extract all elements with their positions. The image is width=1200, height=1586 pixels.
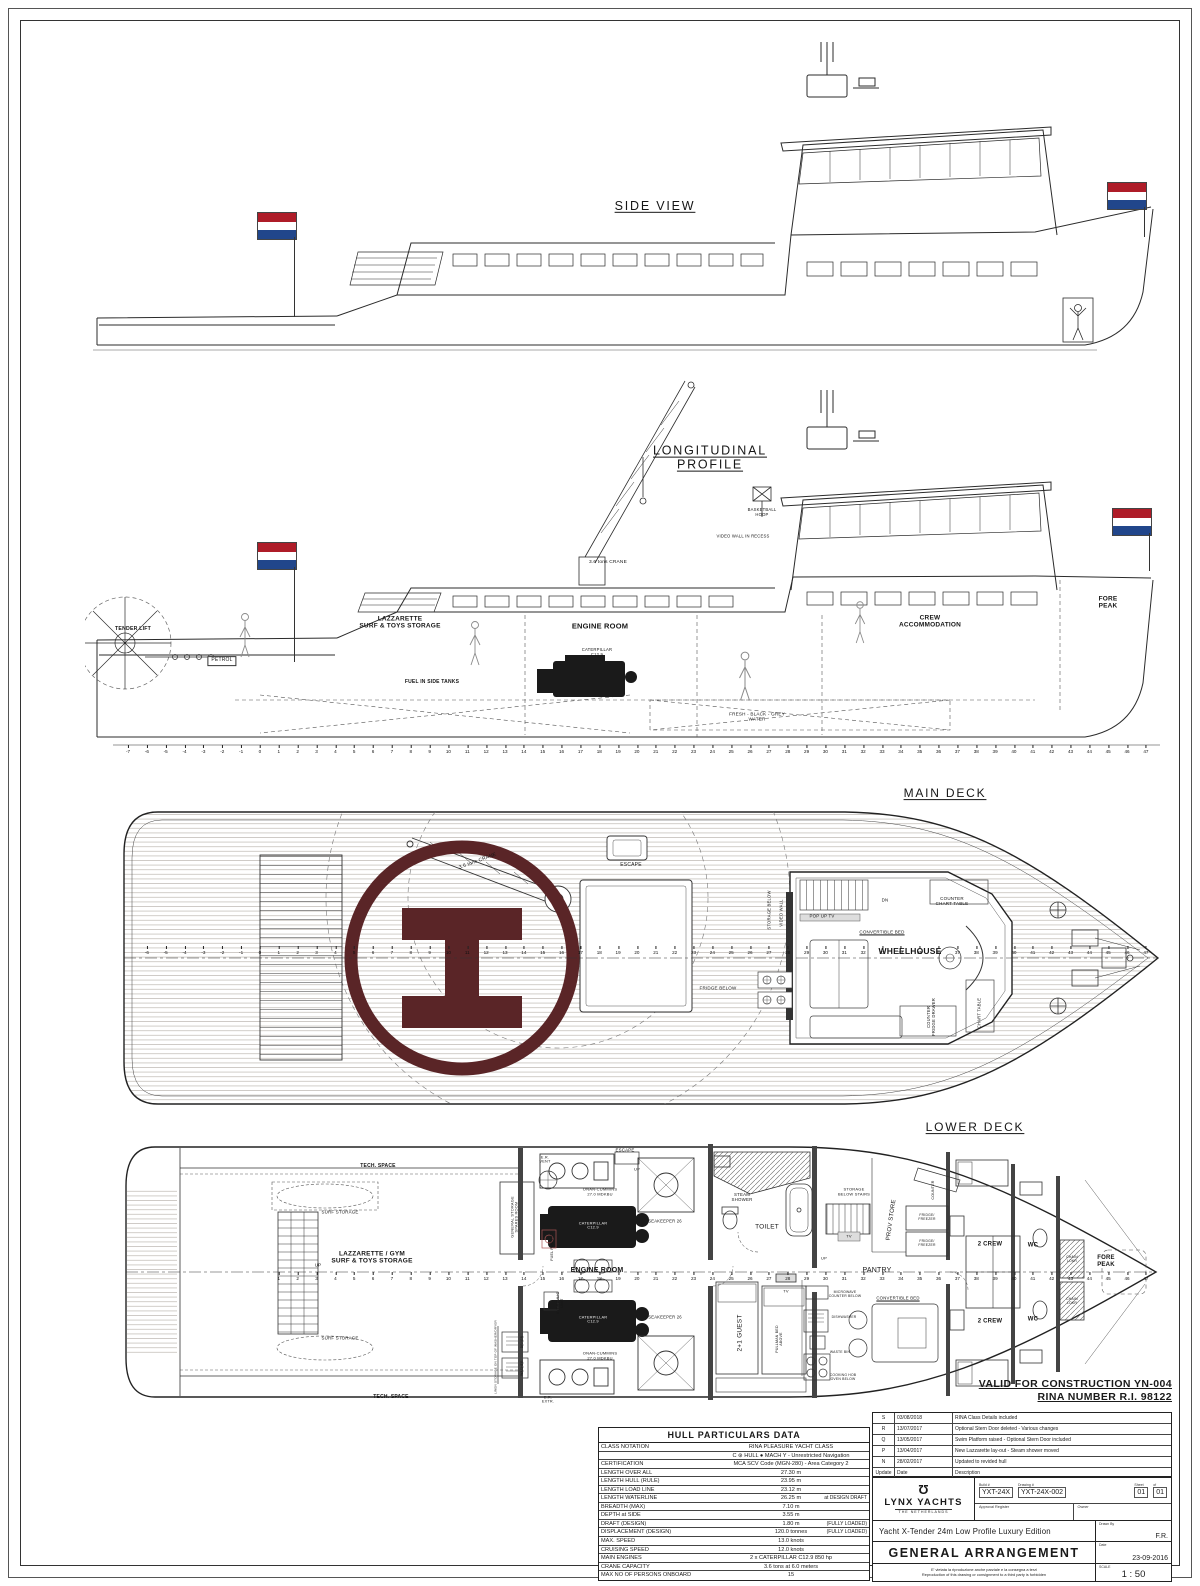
frame-number: 14 [521, 1276, 526, 1281]
frame-number: 42 [1049, 749, 1054, 754]
hull-table-row: LENGTH HULL (RULE)23.95 m [599, 1477, 869, 1486]
revision-row: Q13/05/2017Swim Platform raised - Option… [873, 1435, 1171, 1446]
frame-number: 21 [653, 950, 658, 955]
side-view-drawing: SIDE VIEW [85, 30, 1170, 370]
frame-number: 27 [766, 1276, 771, 1281]
frame-number: 47 [1143, 950, 1148, 955]
frame-number: 39 [993, 1276, 998, 1281]
frame-number: 17 [578, 1276, 583, 1281]
revision-row: N28/02/2017Updated to revided hull [873, 1457, 1171, 1468]
frame-number: 31 [842, 1276, 847, 1281]
drawing-label: FUEL PURIFIER [550, 1231, 554, 1260]
frame-number: 23 [691, 950, 696, 955]
frame-number: 31 [842, 749, 847, 754]
frame-number: -6 [145, 749, 149, 754]
flag-pole [1149, 533, 1150, 571]
deckhouse-windows [453, 254, 763, 266]
longitudinal-profile-drawing: -7-6-5-4-3-2-101234567891011121314151617… [85, 365, 1170, 765]
drawing-label: COUNTER [931, 1180, 935, 1199]
drawing-label: ENGINE ROOM [571, 1267, 624, 1275]
frame-number: 24 [710, 749, 715, 754]
drawing-number-value: YXT-24X-002 [1018, 1487, 1066, 1498]
frame-number: 4 [334, 1276, 337, 1281]
drawing-label: CATERPILLAR C12.9 [582, 648, 613, 658]
drawing-label: LINEN STORAGE ON TOP OF WASHER/DRYER [494, 1320, 497, 1394]
interior-dashed-lines [235, 580, 1060, 737]
longitudinal-linework [85, 365, 1170, 765]
frame-number: 31 [842, 950, 847, 955]
frame-number: 28 [785, 749, 790, 754]
frame-number: 39 [993, 950, 998, 955]
drawing-label: CHART TABLE [978, 998, 983, 1029]
frame-number: 32 [861, 749, 866, 754]
frame-number: -4 [183, 749, 187, 754]
frame-number: 45 [1106, 749, 1111, 754]
hull-table-row: DRAFT (DESIGN)1.80 m(FULLY LOADED) [599, 1520, 869, 1529]
frame-number: 6 [372, 1276, 375, 1281]
drawing-label: 2 CREW [978, 1319, 1003, 1326]
hull-table-row: DEPTH at SIDE3.55 m [599, 1511, 869, 1520]
drawing-label: CATERPILLAR C12.9 [579, 1222, 608, 1231]
frame-number: 26 [747, 749, 752, 754]
frame-number: 2 [296, 950, 299, 955]
drawn-by-value: F.R. [1099, 1533, 1168, 1540]
frame-number: 2 [296, 749, 299, 754]
date-value: 23-09-2016 [1099, 1555, 1168, 1562]
frame-number: 2 [296, 1276, 299, 1281]
hull-table-title: HULL PARTICULARS DATA [599, 1428, 869, 1443]
drawing-label: STORAGE BELOW [768, 890, 773, 929]
revision-row: S03/08/2018RINA Class Details included [873, 1413, 1171, 1424]
valid-for-construction-note: VALID FOR CONSTRUCTION YN-004 RINA NUMBE… [979, 1378, 1172, 1404]
mast [807, 42, 879, 97]
frame-number: 39 [993, 749, 998, 754]
hull-windows [807, 262, 1037, 276]
frame-number: 33 [879, 749, 884, 754]
drawing-label: COUNTER CHART TABLE [936, 896, 969, 906]
frame-number: 14 [521, 950, 526, 955]
drawing-label: HYDRAULIC UNIT [556, 1292, 564, 1315]
frame-number: -5 [164, 749, 168, 754]
drawing-label: WASTE BIN [830, 1351, 850, 1355]
frame-number: -7 [126, 749, 130, 754]
drawing-label: UP [315, 1262, 322, 1267]
scale-value: 1 : 50 [1099, 1569, 1168, 1580]
person-figure [240, 614, 250, 658]
drawing-label: TENDER LIFT [115, 627, 151, 633]
frame-number: 23 [691, 749, 696, 754]
frame-number: 19 [616, 1276, 621, 1281]
frame-number: 43 [1068, 749, 1073, 754]
drawing-label: CHAIN LOKR [1066, 1298, 1078, 1306]
frame-number: 37 [955, 1276, 960, 1281]
frame-number: 10 [446, 950, 451, 955]
drawing-label: FORE PEAK [1097, 1255, 1114, 1269]
brand-name: LYNX YACHTS [884, 1497, 962, 1508]
drawing-subtitle: Yacht X-Tender 24m Low Profile Luxury Ed… [873, 1521, 1095, 1542]
frame-number: 36 [936, 749, 941, 754]
frame-number: 12 [484, 1276, 489, 1281]
frame-number: 44 [1087, 950, 1092, 955]
frame-number: 44 [1087, 749, 1092, 754]
frame-number: 32 [861, 950, 866, 955]
frame-number: 34 [898, 749, 903, 754]
frame-number: 27 [766, 749, 771, 754]
drawing-label: WC [1028, 1317, 1038, 1324]
stern-flag-post [257, 212, 295, 240]
frame-number: 1 [278, 950, 281, 955]
frame-number: 8 [409, 1276, 412, 1281]
flag-pole [1144, 207, 1145, 237]
drawing-label: LONGITUDINAL PROFILE [653, 444, 767, 473]
frame-number: 30 [823, 749, 828, 754]
drawing-label: FRIDGE BELOW [700, 985, 737, 990]
frame-number: 7 [391, 749, 394, 754]
frame-number: 21 [653, 749, 658, 754]
drawing-label: STEAM SHOWER [732, 1192, 753, 1202]
lynx-logo-icon: Ʊ [918, 1483, 928, 1496]
frame-number: 27 [766, 950, 771, 955]
frame-number: 7 [391, 1276, 394, 1281]
drawing-label: LAZZARETTE SURF & TOYS STORAGE [359, 616, 440, 631]
bow-flag-post [1107, 182, 1145, 210]
stern-flag-post [257, 542, 295, 570]
frame-number: 16 [559, 1276, 564, 1281]
frame-number: 12 [484, 950, 489, 955]
drawing-label: UP [821, 1257, 827, 1262]
frame-number: 3 [315, 1276, 318, 1281]
frame-number: 47 [1143, 1276, 1148, 1281]
frame-number: 26 [747, 1276, 752, 1281]
frame-number: 19 [616, 749, 621, 754]
frame-number: -1 [239, 749, 243, 754]
frame-number: 1 [278, 1276, 281, 1281]
hull-particulars-table: HULL PARTICULARS DATA CLASS NOTATIONRINA… [598, 1427, 870, 1581]
frame-number: 13 [502, 1276, 507, 1281]
netherlands-flag [257, 542, 297, 570]
drawing-label: FRIDGE/ FREEZER [918, 1214, 935, 1222]
frame-number: 29 [804, 950, 809, 955]
frame-number: 38 [974, 1276, 979, 1281]
frame-number: -2 [220, 749, 224, 754]
drawing-label: CONVERTIBLE BED [859, 929, 904, 934]
frame-number: 7 [391, 950, 394, 955]
drawing-label: PANTRY [863, 1267, 892, 1275]
frame-number: 36 [936, 1276, 941, 1281]
frame-number: 9 [428, 749, 431, 754]
frame-number: 41 [1030, 950, 1035, 955]
frame-number: 45 [1106, 950, 1111, 955]
drawing-label: TOILET [755, 1223, 779, 1230]
frame-number: 8 [409, 749, 412, 754]
wheelhouse-side [781, 127, 1057, 235]
frame-number: 3 [315, 749, 318, 754]
frame-number: 28 [785, 1276, 790, 1281]
frame-number: 29 [804, 1276, 809, 1281]
drawing-label: TV [846, 1235, 852, 1240]
frame-number: 21 [653, 1276, 658, 1281]
frame-number: 20 [634, 950, 639, 955]
drawing-sheet: SIDE VIEW [0, 0, 1200, 1586]
wheelhouse-side [781, 482, 1057, 590]
main-deck-linework [110, 780, 1175, 1115]
frame-number: 45 [1106, 1276, 1111, 1281]
valid-line-2: RINA NUMBER R.I. 98122 [979, 1391, 1172, 1404]
drawing-label: POP UP TV [810, 913, 835, 918]
frame-number: 37 [955, 950, 960, 955]
frame-number: 33 [879, 1276, 884, 1281]
hull-table-row: LENGTH WATERLINE26.25 mat DESIGN DRAFT [599, 1494, 869, 1503]
drawing-label: MAIN DECK [904, 787, 987, 801]
drawing-label: 2+1 GUEST [736, 1314, 743, 1351]
main-stairs [826, 1204, 870, 1234]
main-engine-silhouette [537, 655, 637, 697]
frame-number: 35 [917, 749, 922, 754]
frame-number: 14 [521, 749, 526, 754]
drawing-label: 2 CREW [978, 1242, 1003, 1249]
disclaimer-english: Reproduction of this drawing or consignm… [873, 1572, 1095, 1578]
frame-number: 42 [1049, 950, 1054, 955]
frame-number: 29 [804, 749, 809, 754]
frame-number: 44 [1087, 1276, 1092, 1281]
frame-number: 22 [672, 950, 677, 955]
netherlands-flag [257, 212, 297, 240]
drawing-label: CREW ACCOMMODATION [899, 615, 961, 630]
frame-number: 5 [353, 1276, 356, 1281]
person-figure [740, 652, 751, 700]
hull-table-row: C ⊛ HULL ● MACH Y - Unrestricted Navigat… [599, 1452, 869, 1461]
owner-label: Owner [1073, 1504, 1172, 1520]
hull-table-row: MAIN ENGINES2 x CATERPILLAR C12.9 850 hp [599, 1554, 869, 1563]
frame-number: 46 [1124, 749, 1129, 754]
deckhouse-windows [453, 596, 733, 607]
drawing-label: CONVERTIBLE BED [876, 1297, 919, 1302]
mast [807, 390, 879, 449]
drawing-label: ONAN-CUMMINS 27.0 MDKBU [583, 1187, 617, 1196]
drawing-label: SURF STORAGE [322, 1209, 359, 1214]
drawing-label: TECH. SPACE [360, 1164, 395, 1170]
drawing-label: VIDEO WALL IN RECESS [716, 535, 769, 540]
drawing-label: WHEELHOUSE [879, 947, 942, 957]
date-label: Date [1099, 1543, 1168, 1547]
drawing-label: FRIDGE/ FREEZER [918, 1240, 935, 1248]
frame-number: 15 [540, 749, 545, 754]
hull-table-row: CERTIFICATIONMCA SCV Code (MGN-280) - Ar… [599, 1460, 869, 1469]
person-figure [470, 622, 480, 666]
frame-number: 28 [785, 950, 790, 955]
sheet-value: 01 [1134, 1487, 1148, 1498]
frame-number: 22 [672, 1276, 677, 1281]
frame-number: 25 [729, 1276, 734, 1281]
frame-number: 35 [917, 1276, 922, 1281]
frame-number: 13 [502, 950, 507, 955]
frame-number: 15 [540, 950, 545, 955]
hull-table-row: MAX. SPEED13.0 knots [599, 1537, 869, 1546]
hull-table-row: CRANE CAPACITY3.6 tons at 6.0 meters [599, 1563, 869, 1572]
frame-number: -2 [220, 950, 224, 955]
bow-flag-post [1112, 508, 1150, 536]
frame-number: -3 [201, 749, 205, 754]
main-deck-plan: -6-5-4-3-2-10123456789101112131415161718… [110, 780, 1175, 1115]
frame-number: -1 [239, 950, 243, 955]
drawing-label: FUEL IN SIDE TANKS [405, 680, 459, 686]
frame-number: 15 [540, 1276, 545, 1281]
frame-number: 11 [465, 1276, 470, 1281]
drawing-label: CHAIN LOKR [1066, 1256, 1078, 1264]
revision-rows: S03/08/2018RINA Class Details includedR1… [873, 1413, 1171, 1476]
hull-table-row: CRUISING SPEED12.0 knots [599, 1546, 869, 1555]
frame-number: 25 [729, 950, 734, 955]
approval-register-label: Approval Register [975, 1504, 1073, 1520]
frame-number: 41 [1030, 749, 1035, 754]
frame-number: 46 [1124, 950, 1129, 955]
flag-pole [294, 567, 295, 662]
frame-number: 40 [1011, 749, 1016, 754]
frame-number: 41 [1030, 1276, 1035, 1281]
frame-number: -6 [145, 950, 149, 955]
frame-number: 16 [559, 950, 564, 955]
drawing-label: DRYER [521, 1336, 525, 1348]
drawing-label: WASHER [521, 1360, 525, 1376]
company-logo: Ʊ LYNX YACHTS THE NETHERLANDS [873, 1478, 975, 1520]
tender-lift [85, 597, 235, 689]
drawing-label: SURF STORAGE [322, 1335, 359, 1340]
frame-number: 9 [428, 950, 431, 955]
frame-number: -3 [201, 950, 205, 955]
frame-number: 9 [428, 1276, 431, 1281]
frame-number: 40 [1011, 1276, 1016, 1281]
hull-table-row: MAX NO OF PERSONS ONBOARD15 [599, 1571, 869, 1580]
drawing-label: FORE PEAK [1099, 596, 1118, 611]
revision-table: S03/08/2018RINA Class Details includedR1… [872, 1412, 1172, 1477]
frame-number: 32 [861, 1276, 866, 1281]
frame-number: 13 [502, 749, 507, 754]
drawing-label: SIDE VIEW [615, 199, 696, 213]
frame-number: 0 [259, 950, 262, 955]
frame-number: 11 [465, 749, 470, 754]
drawing-label: COUNTER FRIDGE DRAWER [927, 998, 937, 1036]
drawing-label: MICROWAVE COUNTER BELOW [829, 1291, 862, 1299]
drawing-label: BASKETBALL HOOP [748, 508, 777, 518]
frame-number: 23 [691, 1276, 696, 1281]
drawing-label: E.R. VENT [540, 1156, 551, 1165]
frame-number: 24 [710, 950, 715, 955]
frame-number: 46 [1124, 1276, 1129, 1281]
frame-number: 18 [597, 749, 602, 754]
drawing-label: 3.6 tons CRANE [589, 560, 627, 566]
person-figure [855, 602, 865, 643]
drawing-label: E.R. EXTR. [542, 1396, 554, 1405]
frame-number: 18 [597, 950, 602, 955]
frame-number: 3 [315, 950, 318, 955]
drawing-label: ESCAPE [615, 1147, 634, 1152]
drawing-label: GENERAL STORAGE SPARES ROOM [511, 1196, 520, 1237]
drawing-label: DISHWASHER [832, 1316, 857, 1320]
valid-line-1: VALID FOR CONSTRUCTION YN-004 [979, 1378, 1172, 1391]
frame-number: 4 [334, 950, 337, 955]
drawing-label: ONAN-CUMMINS 27.0 MDKBU [583, 1351, 617, 1360]
frame-number: 38 [974, 749, 979, 754]
frame-number: 10 [446, 1276, 451, 1281]
frame-number: 19 [616, 950, 621, 955]
drawing-label: UP [634, 1168, 640, 1173]
revision-row: R13/07/2017Optional Stern Door deleted -… [873, 1424, 1171, 1435]
crane [579, 381, 695, 585]
drawn-by-label: Drawn By [1099, 1522, 1168, 1526]
drawing-label: STORAGE BELOW STAIRS [838, 1187, 870, 1196]
of-value: 01 [1153, 1487, 1167, 1498]
frame-number: 20 [634, 1276, 639, 1281]
frame-number: 10 [446, 749, 451, 754]
frame-number: 0 [259, 749, 262, 754]
hull-table-row: BREADTH (MAX)7.10 m [599, 1503, 869, 1512]
frame-number: 8 [409, 950, 412, 955]
frame-number: 20 [634, 749, 639, 754]
frame-number: 11 [465, 950, 470, 955]
drawing-label: PULLMAN BED ABOVE [775, 1325, 783, 1353]
drawing-label: ESCAPE [620, 863, 642, 869]
frame-number: 25 [729, 749, 734, 754]
flag-pole [294, 237, 295, 317]
drawing-main-title: GENERAL ARRANGEMENT [873, 1542, 1095, 1563]
drawing-label: FRESH - BLACK - GREY WATER [729, 712, 785, 723]
stern-door-figure [1063, 298, 1093, 342]
hull-table-row: DISPLACEMENT (DESIGN)120.0 tonnes(FULLY … [599, 1528, 869, 1537]
drawing-label: PETROL [207, 656, 236, 666]
frame-number: 18 [597, 1276, 602, 1281]
frame-number: -4 [183, 950, 187, 955]
hull-table-row: LENGTH LOAD LINE23.12 m [599, 1486, 869, 1495]
frame-number: 6 [372, 950, 375, 955]
hull-table-row: CLASS NOTATIONRINA PLEASURE YACHT CLASS [599, 1443, 869, 1452]
frame-number: 5 [353, 950, 356, 955]
frame-number: 4 [334, 749, 337, 754]
frame-number: 24 [710, 1276, 715, 1281]
brand-subtitle: THE NETHERLANDS [895, 1509, 953, 1514]
frame-number: 34 [898, 1276, 903, 1281]
hull-table-row: LENGTH OVER ALL27.30 m [599, 1469, 869, 1478]
netherlands-flag [1112, 508, 1152, 536]
frame-number: 38 [974, 950, 979, 955]
frame-number: 16 [559, 749, 564, 754]
frame-number: 47 [1143, 749, 1148, 754]
drawing-label: LOWER DECK [926, 1121, 1025, 1135]
frame-number: 17 [578, 749, 583, 754]
hull-table-rows: CLASS NOTATIONRINA PLEASURE YACHT CLASSC… [599, 1443, 869, 1580]
frame-number: 5 [353, 749, 356, 754]
netherlands-flag [1107, 182, 1147, 210]
drawing-label: LAZZARETTE / GYM SURF & TOYS STORAGE [331, 1251, 412, 1266]
revision-row: P13/04/2017New Lazzarette lay-out - Stea… [873, 1446, 1171, 1457]
frame-number: 43 [1068, 1276, 1073, 1281]
drawing-label: WC [1028, 1243, 1038, 1250]
drawing-label: VIDEO WALL [780, 899, 785, 926]
drawing-label: SEAKEEPER 26 [648, 1316, 682, 1321]
frame-number: 42 [1049, 1276, 1054, 1281]
frame-number: 30 [823, 950, 828, 955]
drawing-label: TV [783, 1290, 789, 1295]
frame-number: 1 [278, 749, 281, 754]
drawing-label: TECH. SPACE [373, 1395, 408, 1401]
drawing-label: COOKING HOB OVEN BELOW [830, 1374, 857, 1382]
drawing-label: SEAKEEPER 26 [648, 1220, 682, 1225]
frame-number: 17 [578, 950, 583, 955]
drawing-label: ENGINE ROOM [572, 623, 628, 632]
frame-number: 26 [747, 950, 752, 955]
drawing-label: DN [882, 897, 889, 902]
frame-number: 40 [1011, 950, 1016, 955]
frame-number: 12 [484, 749, 489, 754]
